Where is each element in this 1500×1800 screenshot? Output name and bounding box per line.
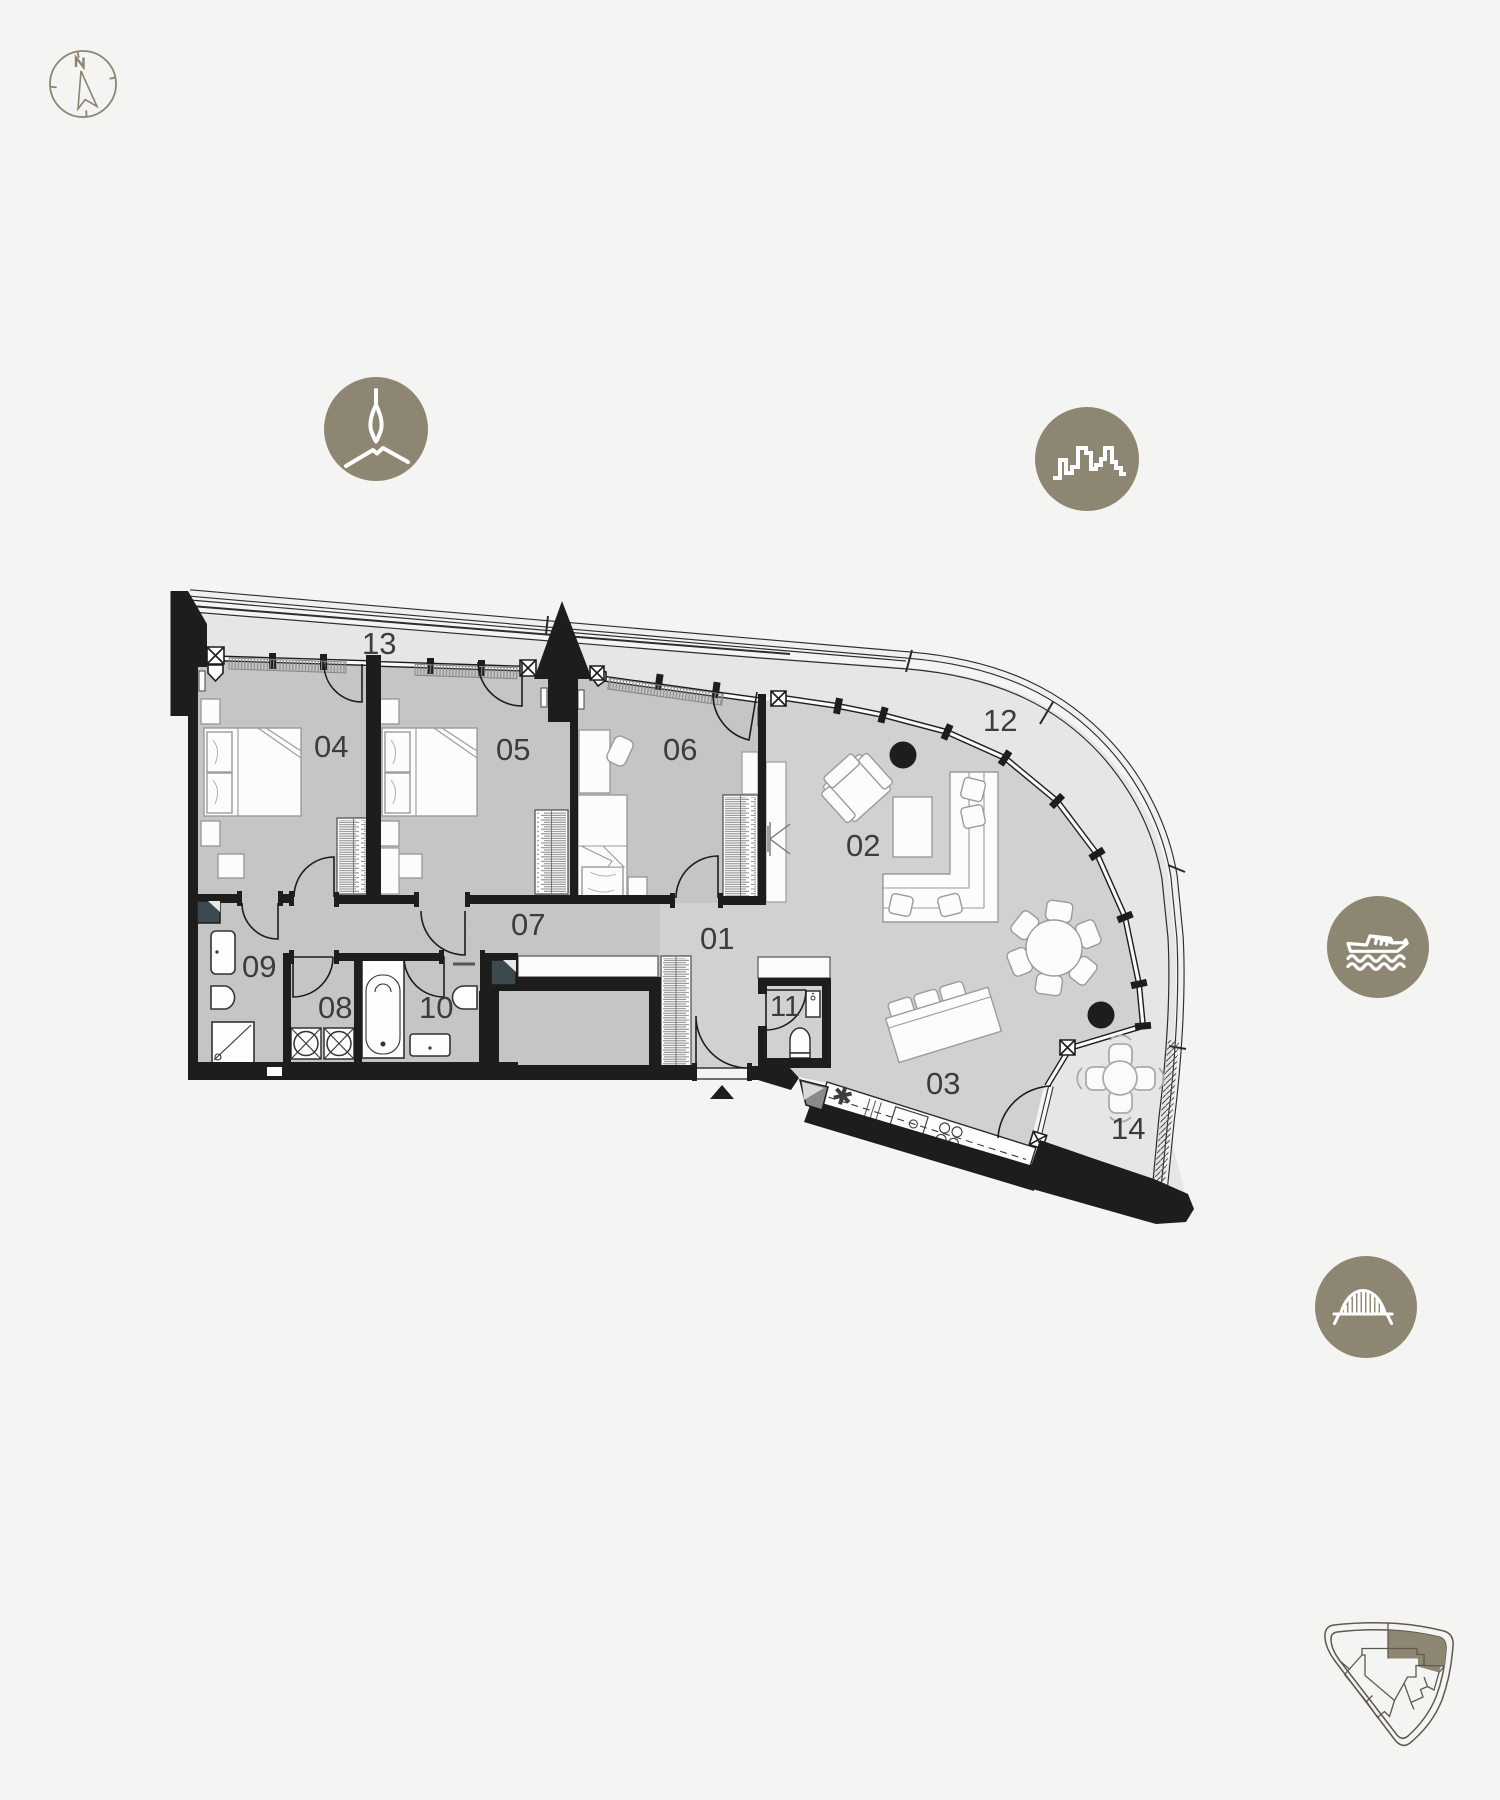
svg-text:13: 13 — [362, 626, 396, 661]
svg-text:10: 10 — [419, 990, 453, 1025]
svg-text:12: 12 — [983, 703, 1017, 738]
svg-text:08: 08 — [318, 990, 352, 1025]
svg-text:09: 09 — [242, 949, 276, 984]
svg-text:03: 03 — [926, 1066, 960, 1101]
svg-text:06: 06 — [663, 732, 697, 767]
svg-text:14: 14 — [1111, 1111, 1145, 1146]
svg-text:04: 04 — [314, 729, 348, 764]
svg-text:11: 11 — [770, 991, 800, 1023]
svg-text:02: 02 — [846, 828, 880, 863]
svg-text:05: 05 — [496, 732, 530, 767]
svg-text:07: 07 — [511, 907, 545, 942]
svg-text:01: 01 — [700, 921, 734, 956]
